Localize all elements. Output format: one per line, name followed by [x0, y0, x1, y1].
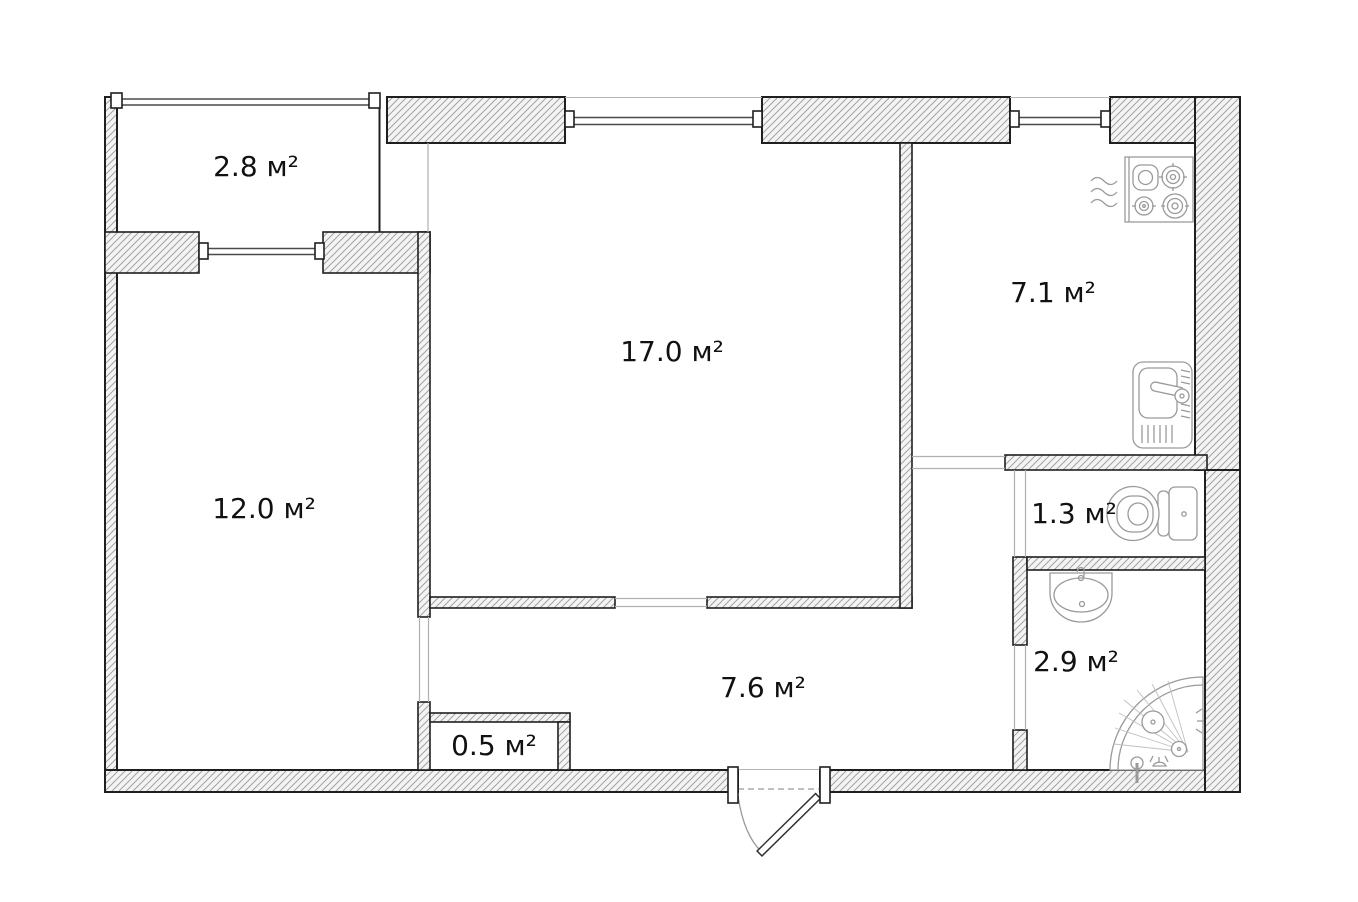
door-leaf — [757, 794, 820, 856]
steam-icon — [1091, 178, 1117, 207]
room-bedroom-label: 12.0 м² — [212, 492, 316, 525]
door-jamb — [728, 767, 738, 803]
wall-segment — [900, 143, 912, 608]
wall-segment — [1110, 97, 1195, 143]
bedroom-opening — [420, 617, 429, 702]
wall-segment — [1205, 470, 1240, 792]
toilet-icon — [1107, 487, 1197, 541]
floor-plan-page: 2.8 м² 17.0 м² 7.1 м² 12.0 м² 1.3 м² 2.9… — [0, 0, 1358, 902]
corner-shower-icon — [1110, 677, 1204, 783]
wall-segment — [105, 232, 199, 273]
room-closet-label: 0.5 м² — [451, 729, 537, 762]
wall-segment — [1013, 557, 1027, 645]
room-wc-label: 1.3 м² — [1031, 497, 1117, 530]
window-icon — [199, 243, 324, 259]
room-hallway-label: 7.6 м² — [720, 671, 806, 704]
wall-segment — [1195, 97, 1240, 470]
wall-segment — [430, 597, 615, 608]
wall-segment — [820, 770, 1240, 792]
entry-door-icon — [728, 767, 830, 856]
wall-segment — [418, 232, 430, 617]
kitchen-opening — [912, 457, 1005, 469]
wall-segment — [387, 97, 565, 143]
room-kitchen-label: 7.1 м² — [1010, 276, 1096, 309]
door-swing-arc — [738, 796, 762, 852]
window-icon — [1010, 98, 1110, 128]
stove-icon — [1125, 157, 1193, 222]
wall-segment — [1013, 730, 1027, 770]
wall-segment — [558, 722, 570, 770]
room-living-room-label: 17.0 м² — [620, 335, 724, 368]
door-jamb — [820, 767, 830, 803]
wall-segment — [430, 713, 570, 722]
room-bathroom-label: 2.9 м² — [1033, 645, 1119, 678]
wall-segment — [762, 97, 1010, 143]
wall-segment — [105, 770, 738, 792]
wall-segment — [323, 232, 430, 273]
bathroom-opening — [1015, 645, 1026, 730]
kitchen-sink-icon — [1133, 362, 1192, 448]
window-icon — [565, 98, 762, 128]
washbasin-icon — [1050, 568, 1112, 622]
wall-segment — [1005, 455, 1207, 470]
outer-walls — [105, 97, 1240, 792]
wc-opening — [1015, 470, 1026, 557]
living-room-opening — [615, 599, 707, 607]
wall-segment — [1027, 557, 1205, 570]
wall-segment — [707, 597, 912, 608]
wall-segment — [418, 702, 430, 770]
floor-plan: 2.8 м² 17.0 м² 7.1 м² 12.0 м² 1.3 м² 2.9… — [0, 0, 1358, 902]
wall-segment — [105, 97, 117, 792]
room-balcony-label: 2.8 м² — [213, 150, 299, 183]
window-icon — [111, 93, 380, 108]
